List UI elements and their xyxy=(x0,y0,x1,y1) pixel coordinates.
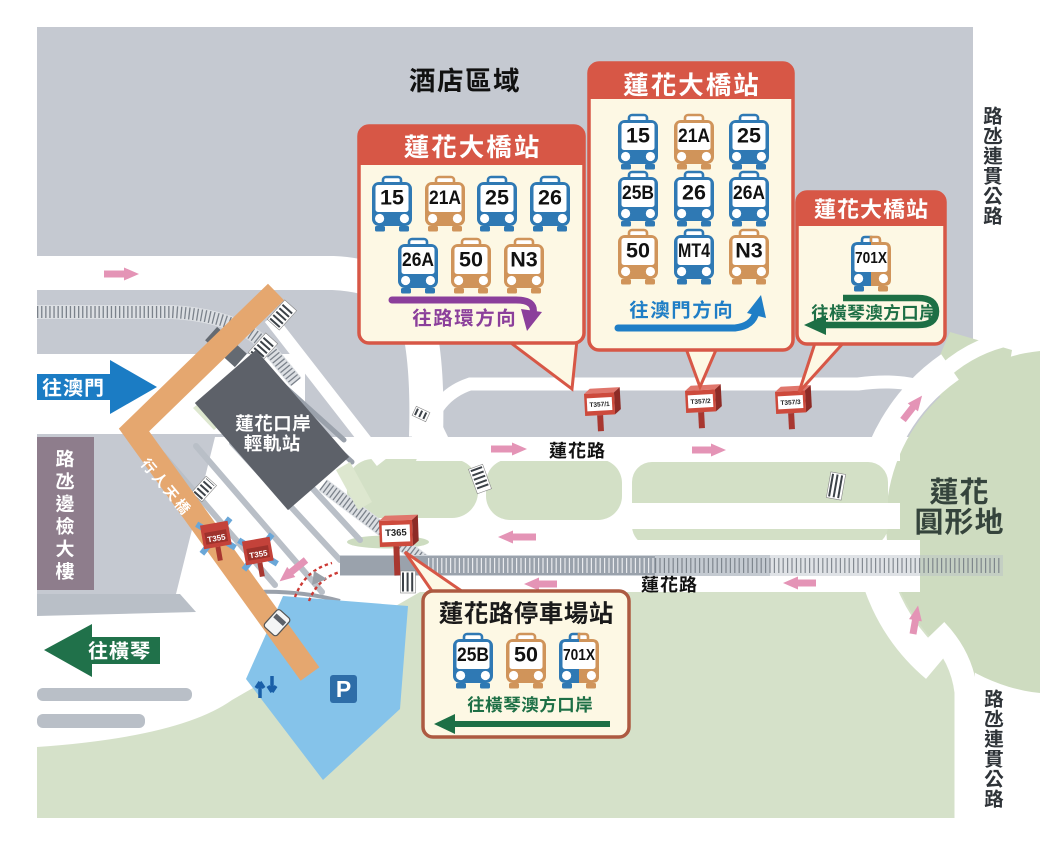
svg-text:MT4: MT4 xyxy=(678,241,710,262)
svg-text:701X: 701X xyxy=(563,647,596,664)
svg-text:701X: 701X xyxy=(855,250,888,267)
svg-text:50: 50 xyxy=(459,248,483,272)
svg-text:21A: 21A xyxy=(429,188,461,209)
svg-text:15: 15 xyxy=(380,186,404,210)
svg-text:50: 50 xyxy=(626,239,650,263)
svg-text:25: 25 xyxy=(737,124,761,148)
svg-text:N3: N3 xyxy=(735,239,763,263)
svg-text:T357/2: T357/2 xyxy=(690,398,711,406)
svg-text:25B: 25B xyxy=(457,645,489,666)
svg-text:21A: 21A xyxy=(678,126,710,147)
svg-text:26: 26 xyxy=(538,186,562,210)
svg-text:T365: T365 xyxy=(385,527,408,539)
svg-text:50: 50 xyxy=(514,643,538,667)
svg-text:P: P xyxy=(336,676,351,702)
svg-text:T357/3: T357/3 xyxy=(780,399,801,407)
svg-text:25: 25 xyxy=(485,186,509,210)
svg-text:25B: 25B xyxy=(622,183,654,204)
svg-text:N3: N3 xyxy=(510,248,538,272)
svg-text:26A: 26A xyxy=(733,183,765,204)
svg-text:15: 15 xyxy=(626,124,650,148)
svg-text:26A: 26A xyxy=(402,250,434,271)
svg-text:T357/1: T357/1 xyxy=(589,401,610,409)
svg-text:26: 26 xyxy=(682,181,706,205)
